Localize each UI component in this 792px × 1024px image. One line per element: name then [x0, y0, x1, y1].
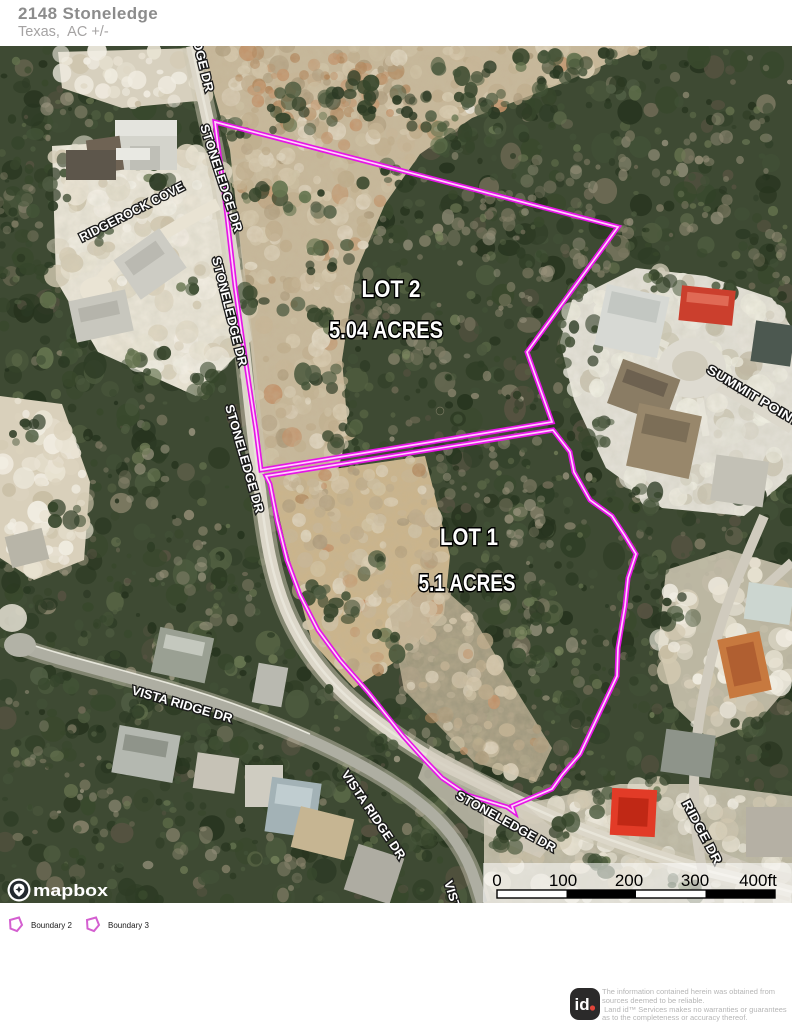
- svg-text:LOT 2: LOT 2: [362, 276, 421, 303]
- svg-text:400ft: 400ft: [739, 871, 777, 890]
- svg-text:300: 300: [681, 871, 709, 890]
- svg-text:0: 0: [492, 871, 501, 890]
- svg-text:mapbox: mapbox: [33, 881, 109, 900]
- svg-text:5.04 ACRES: 5.04 ACRES: [329, 317, 443, 344]
- svg-text:100: 100: [549, 871, 577, 890]
- svg-text:LOT 1: LOT 1: [440, 524, 498, 551]
- svg-text:id: id: [575, 995, 590, 1014]
- svg-text:5.1 ACRES: 5.1 ACRES: [419, 570, 516, 597]
- svg-text:200: 200: [615, 871, 643, 890]
